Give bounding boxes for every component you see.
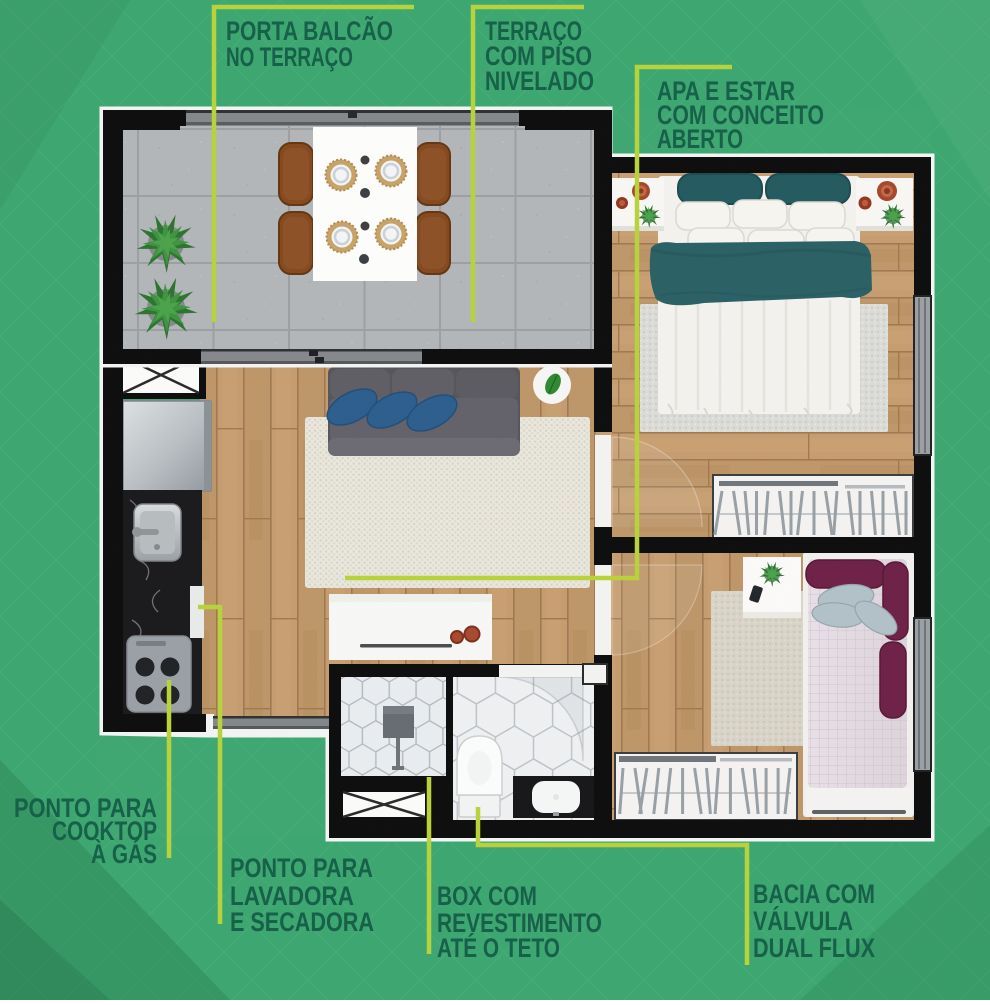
svg-text:E SECADORA: E SECADORA (230, 907, 374, 937)
svg-text:NO TERRAÇO: NO TERRAÇO (226, 42, 353, 72)
svg-text:BOX COM: BOX COM (437, 881, 537, 911)
svg-text:VÁLVULA: VÁLVULA (753, 905, 853, 936)
svg-text:NIVELADO: NIVELADO (485, 66, 594, 96)
svg-text:ATÉ O TETO: ATÉ O TETO (437, 932, 560, 963)
svg-text:PONTO PARA: PONTO PARA (230, 853, 373, 883)
svg-text:À GÁS: À GÁS (91, 838, 157, 869)
svg-text:ABERTO: ABERTO (657, 124, 743, 154)
svg-text:BACIA COM: BACIA COM (753, 879, 875, 909)
svg-text:DUAL FLUX: DUAL FLUX (753, 933, 875, 963)
